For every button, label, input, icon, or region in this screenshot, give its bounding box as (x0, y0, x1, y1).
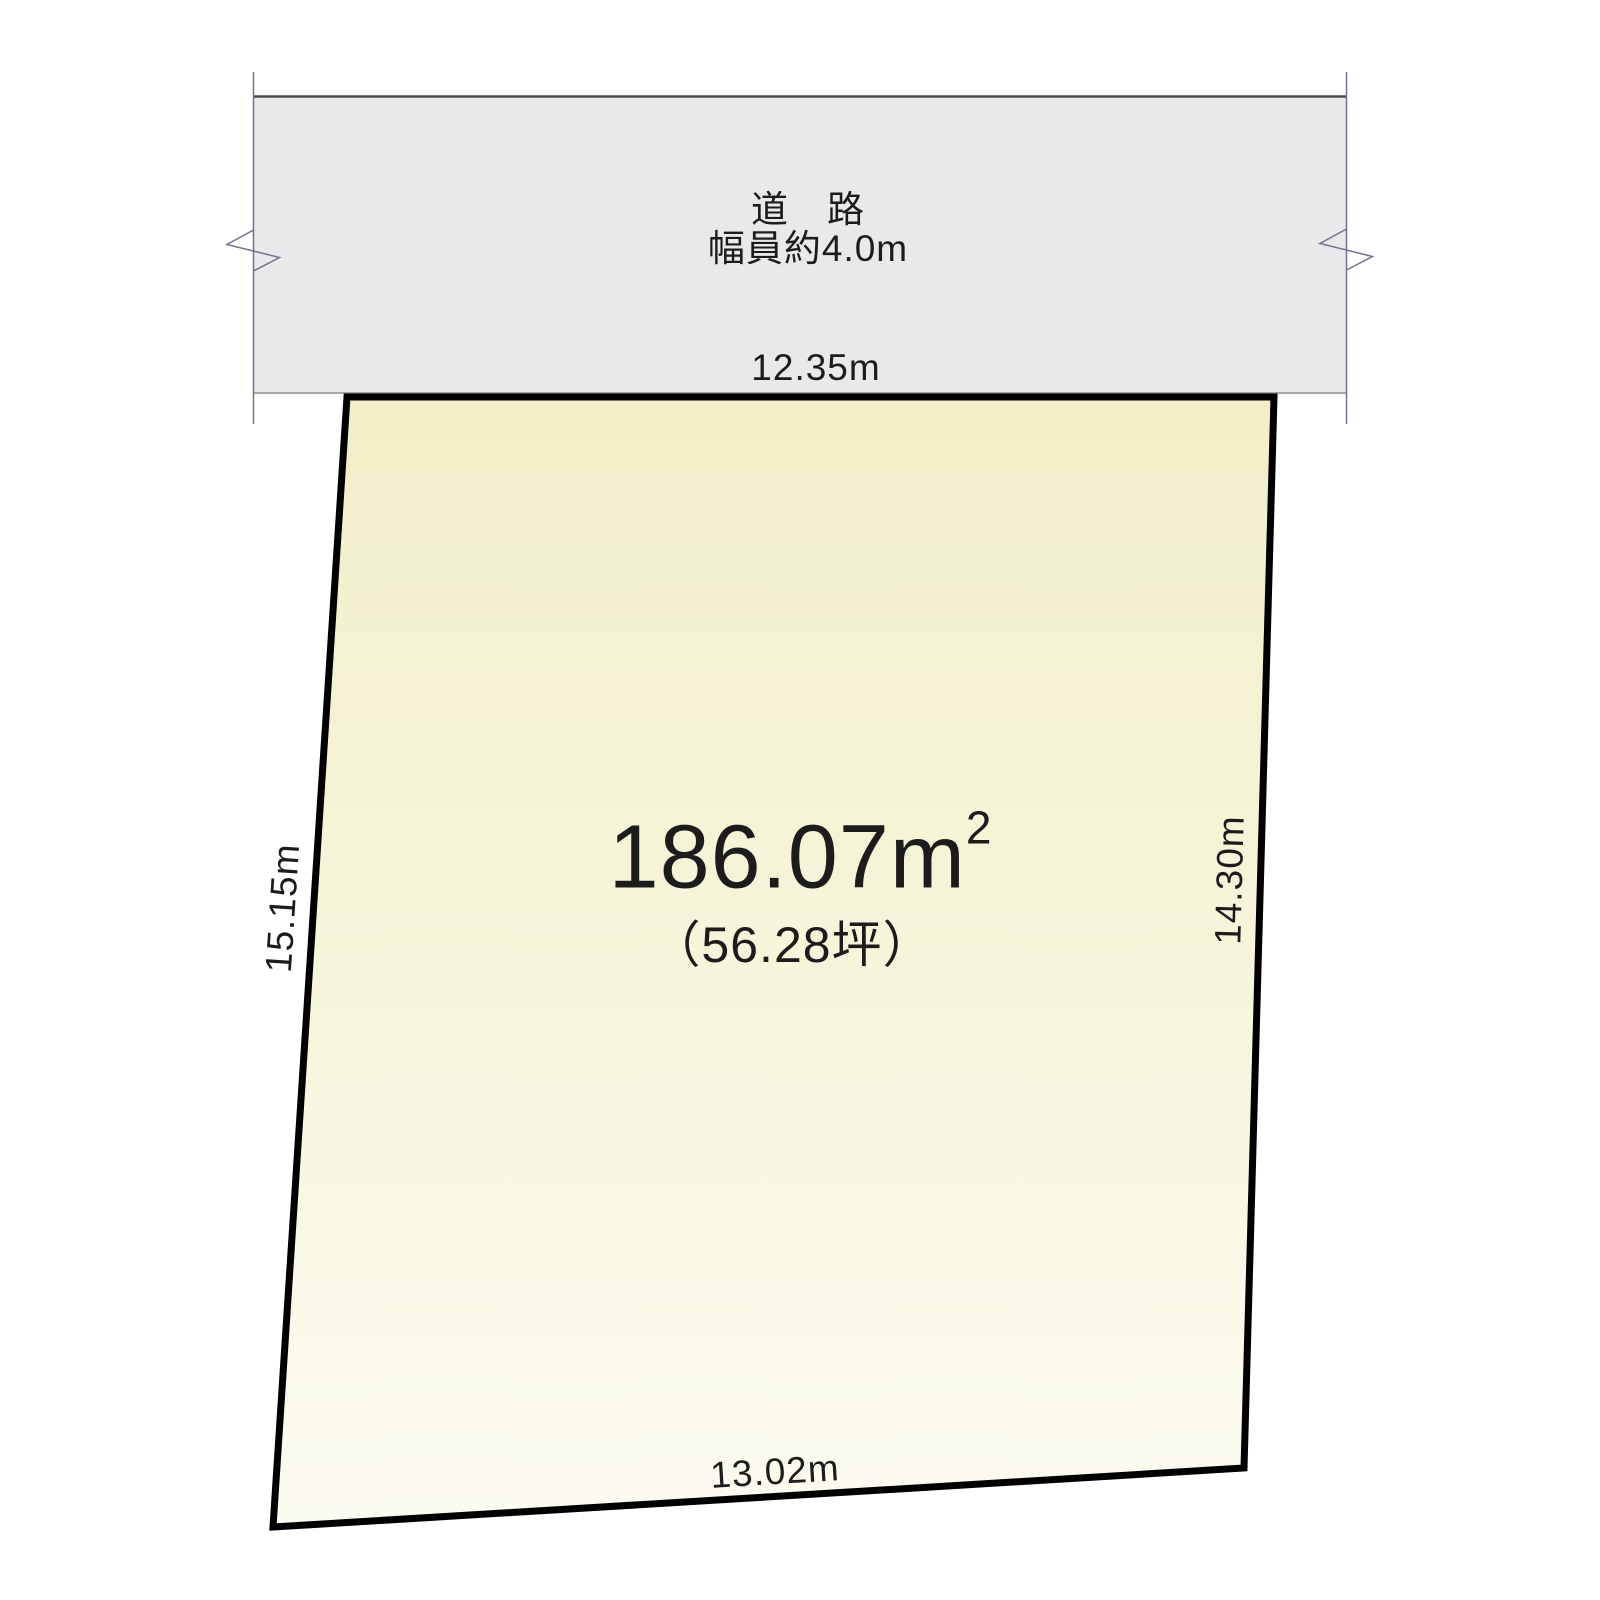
area-tsubo-label: （56.28坪） (650, 905, 933, 977)
dimension-bottom-label: 13.02m (709, 1447, 841, 1497)
area-superscript: 2 (966, 802, 992, 854)
land-plot-diagram: 道 路 幅員約4.0m 12.35m 186.07m2 （56.28坪） 15.… (0, 0, 1600, 1600)
area-label: 186.07m2 (609, 807, 992, 910)
road-name: 道 路 (708, 190, 908, 229)
dimension-left-label: 15.15m (258, 842, 308, 974)
area-value: 186.07m (609, 808, 966, 908)
dimension-right-label: 14.30m (1207, 815, 1253, 946)
dimension-top-label: 12.35m (751, 347, 880, 389)
road-label: 道 路 幅員約4.0m (708, 190, 908, 268)
road-width-note: 幅員約4.0m (708, 229, 908, 268)
